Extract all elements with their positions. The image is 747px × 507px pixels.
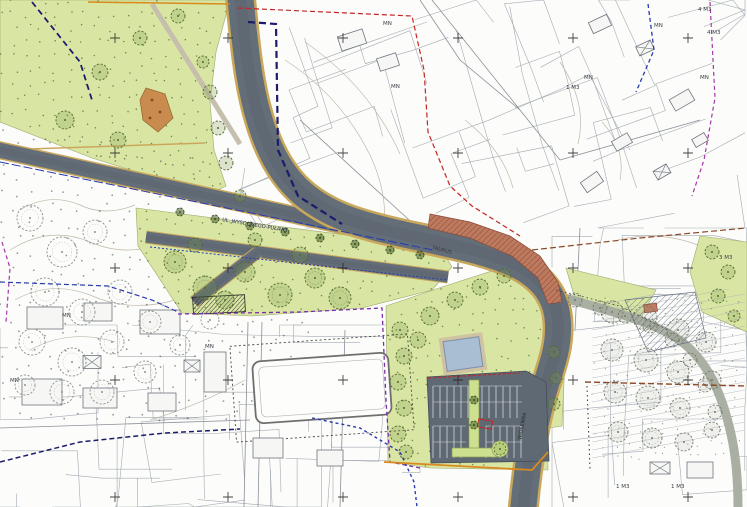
- tree-center-dot: [611, 349, 613, 351]
- tree-center-dot: [354, 243, 356, 245]
- tree-center-dot: [711, 251, 713, 253]
- tree-center-dot: [479, 286, 481, 288]
- tree-center-dot: [71, 361, 73, 363]
- tree-center-dot: [403, 355, 405, 357]
- map-label: 4 M3: [707, 30, 721, 36]
- map-label: MN: [391, 84, 400, 90]
- tree-center-dot: [61, 251, 63, 253]
- tree-center-dot: [689, 359, 691, 361]
- tree-center-dot: [279, 294, 281, 296]
- tree-center-dot: [553, 403, 555, 405]
- tree-center-dot: [647, 397, 649, 399]
- tree-center-dot: [429, 315, 431, 317]
- building-outline: [204, 352, 226, 392]
- tree-center-dot: [671, 339, 673, 341]
- tree-center-dot: [204, 287, 206, 289]
- tree-center-dot: [733, 315, 735, 317]
- tree-center-dot: [202, 61, 204, 63]
- building-outline: [22, 379, 62, 405]
- tree-center-dot: [179, 211, 181, 213]
- tree-center-dot: [417, 339, 419, 341]
- building-outline: [253, 438, 283, 458]
- building-outline: [317, 450, 343, 466]
- tree-center-dot: [179, 344, 181, 346]
- building-outline: [140, 310, 180, 334]
- tree-center-dot: [397, 381, 399, 383]
- tree-center-dot: [119, 291, 121, 293]
- tree-center-dot: [94, 231, 96, 233]
- tree-center-dot: [44, 291, 46, 293]
- tree-center-dot: [81, 311, 83, 313]
- tree-center-dot: [139, 37, 141, 39]
- map-label: MN: [205, 344, 214, 350]
- tree-center-dot: [403, 407, 405, 409]
- playground-equipment: [159, 111, 162, 114]
- tree-center-dot: [677, 371, 679, 373]
- tree-center-dot: [61, 391, 63, 393]
- tree-center-dot: [679, 407, 681, 409]
- tree-center-dot: [645, 359, 647, 361]
- tree-center-dot: [503, 275, 505, 277]
- playground-equipment: [151, 99, 154, 102]
- site-plan-canvas: 4 M34 M3MNMNMNMNMN3 M31 M31 M31 M3MNMNMN…: [0, 0, 747, 507]
- tree-center-dot: [225, 162, 227, 164]
- tree-center-dot: [717, 295, 719, 297]
- tree-center-dot: [711, 429, 713, 431]
- map-label: 4 M3: [698, 7, 712, 13]
- tree-center-dot: [397, 433, 399, 435]
- map-label: MN: [62, 313, 71, 319]
- map-label: 1 M3: [616, 484, 630, 490]
- tree-center-dot: [101, 391, 103, 393]
- tree-center-dot: [319, 237, 321, 239]
- tree-center-dot: [144, 371, 146, 373]
- tree-center-dot: [177, 15, 179, 17]
- playground-equipment: [149, 117, 152, 120]
- tree-center-dot: [209, 91, 211, 93]
- pool: [443, 337, 483, 372]
- tree-center-dot: [244, 271, 246, 273]
- tree-center-dot: [214, 218, 216, 220]
- tree-center-dot: [31, 341, 33, 343]
- tree-center-dot: [389, 249, 391, 251]
- tree-center-dot: [209, 319, 211, 321]
- tree-center-dot: [99, 71, 101, 73]
- parking-island: [469, 380, 479, 450]
- tree-center-dot: [111, 341, 113, 343]
- map-label: MN: [654, 23, 663, 29]
- tree-center-dot: [683, 441, 685, 443]
- tree-center-dot: [149, 321, 151, 323]
- tree-center-dot: [611, 311, 613, 313]
- tree-center-dot: [239, 195, 241, 197]
- tree-center-dot: [499, 448, 501, 450]
- tree-center-dot: [217, 127, 219, 129]
- tree-center-dot: [624, 315, 626, 317]
- map-label: 3 M3: [719, 255, 733, 261]
- tree-center-dot: [677, 329, 679, 331]
- tree-center-dot: [473, 399, 475, 401]
- tree-center-dot: [574, 299, 576, 301]
- parking-island: [452, 448, 498, 457]
- building-outline: [84, 303, 112, 321]
- tree-center-dot: [454, 299, 456, 301]
- map-label: 1 M3: [566, 85, 580, 91]
- tree-center-dot: [649, 325, 651, 327]
- tree-center-dot: [399, 329, 401, 331]
- tree-center-dot: [117, 139, 119, 141]
- tree-center-dot: [29, 217, 31, 219]
- tree-center-dot: [553, 351, 555, 353]
- tree-center-dot: [64, 119, 66, 121]
- tree-center-dot: [314, 277, 316, 279]
- tree-center-dot: [727, 271, 729, 273]
- tree-center-dot: [24, 384, 26, 386]
- building-outline: [27, 307, 63, 329]
- building-outline: [687, 462, 713, 478]
- tree-center-dot: [194, 244, 196, 246]
- map-label: MN: [10, 378, 19, 384]
- tree-center-dot: [174, 261, 176, 263]
- tree-center-dot: [299, 254, 301, 256]
- tree-center-dot: [224, 299, 226, 301]
- map-label: MN: [700, 75, 709, 81]
- tree-center-dot: [711, 379, 713, 381]
- tree-center-dot: [614, 391, 616, 393]
- building-outline: [148, 393, 176, 411]
- tree-center-dot: [651, 437, 653, 439]
- map-label: 1 M3: [671, 484, 685, 490]
- tree-center-dot: [405, 451, 407, 453]
- tree-center-dot: [254, 239, 256, 241]
- tree-center-dot: [339, 297, 341, 299]
- tree-center-dot: [617, 431, 619, 433]
- building-outline: [83, 388, 117, 408]
- map-label: MN: [383, 21, 392, 27]
- map-label: MN: [584, 75, 593, 81]
- tree-center-dot: [555, 377, 557, 379]
- tree-center-dot: [473, 424, 475, 426]
- site-plan-map: 4 M34 M3MNMNMNMNMN3 M31 M31 M31 M3MNMNMN…: [0, 0, 747, 507]
- tree-center-dot: [599, 307, 601, 309]
- tree-center-dot: [419, 254, 421, 256]
- tree-center-dot: [714, 411, 716, 413]
- tree-center-dot: [705, 341, 707, 343]
